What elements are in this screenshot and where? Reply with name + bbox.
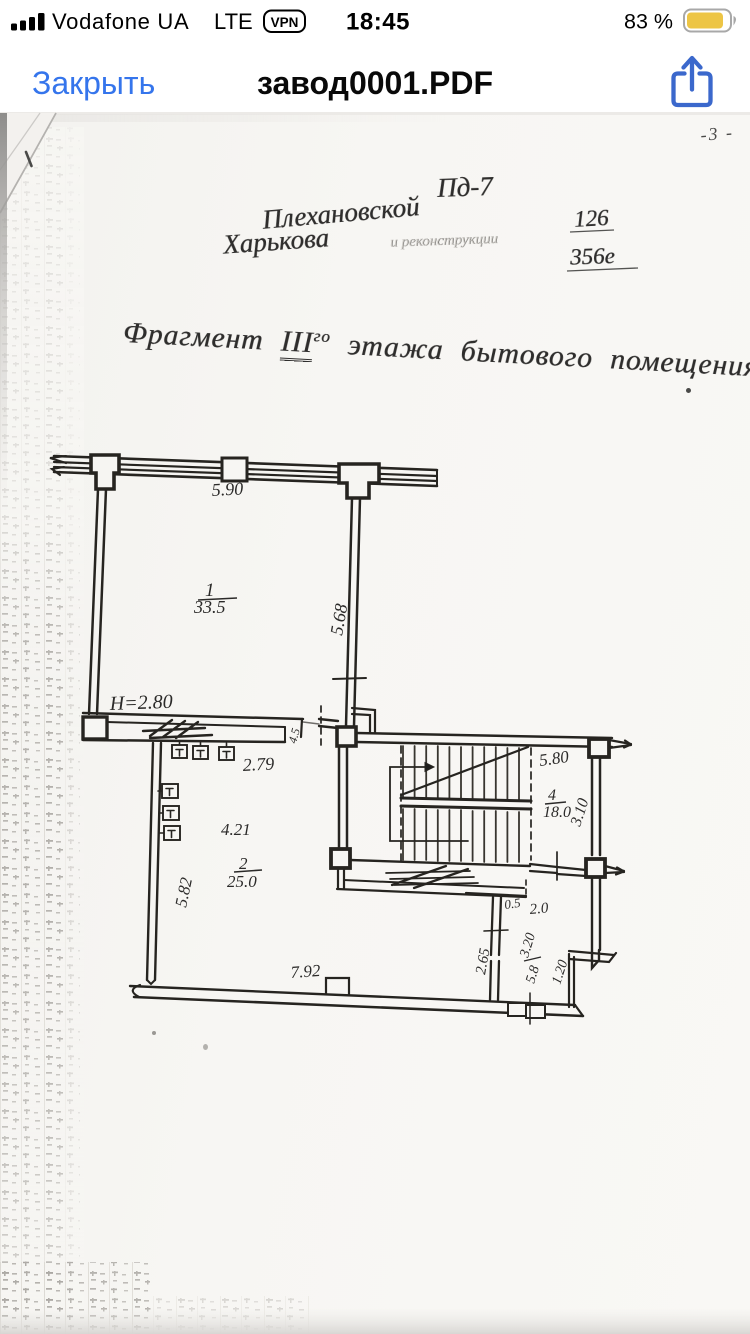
svg-text:5.80: 5.80 <box>538 747 571 770</box>
svg-text:2.0: 2.0 <box>529 900 550 918</box>
svg-text:4: 4 <box>548 787 556 804</box>
svg-text:5.90: 5.90 <box>211 478 244 500</box>
svg-text:H=2.80: H=2.80 <box>108 691 173 715</box>
svg-text:4.21: 4.21 <box>221 820 251 839</box>
svg-text:7.92: 7.92 <box>290 961 322 982</box>
svg-text:4.5: 4.5 <box>285 727 302 745</box>
svg-text:2: 2 <box>239 854 248 873</box>
svg-text:5.8: 5.8 <box>523 964 542 985</box>
svg-text:-3 -: -3 - <box>700 122 735 145</box>
svg-text:25.0: 25.0 <box>227 872 257 891</box>
svg-text:5.82: 5.82 <box>171 875 196 909</box>
svg-text:3.20: 3.20 <box>517 931 539 960</box>
svg-text:0.5: 0.5 <box>503 895 522 912</box>
svg-text:2.79: 2.79 <box>242 753 275 775</box>
svg-text:3.10: 3.10 <box>567 796 592 829</box>
svg-text:18.0: 18.0 <box>543 804 571 821</box>
